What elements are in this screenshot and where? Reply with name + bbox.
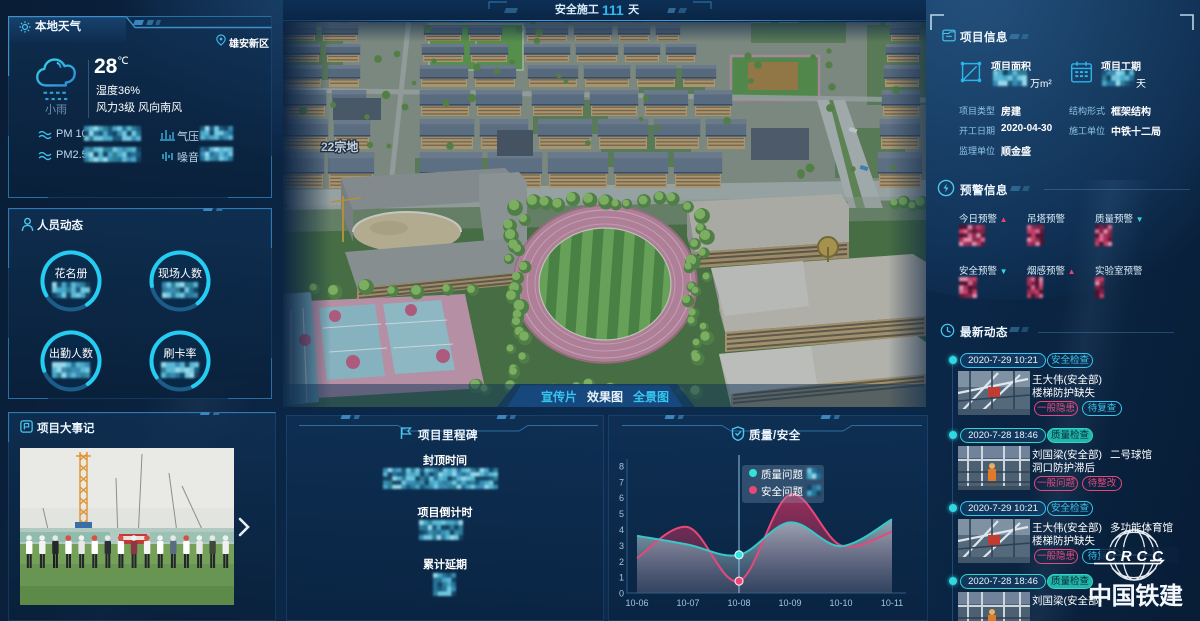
svg-text:中国铁建: 中国铁建 bbox=[1088, 583, 1183, 610]
svg-text:10-10: 10-10 bbox=[829, 598, 852, 608]
svg-text:6: 6 bbox=[619, 493, 624, 503]
svg-text:5: 5 bbox=[619, 509, 624, 519]
svg-text:10-07: 10-07 bbox=[676, 598, 699, 608]
svg-text:8: 8 bbox=[619, 462, 624, 472]
svg-text:3: 3 bbox=[619, 541, 624, 551]
svg-text:1: 1 bbox=[619, 573, 624, 583]
svg-text:10-08: 10-08 bbox=[727, 598, 750, 608]
svg-text:0: 0 bbox=[619, 589, 624, 599]
svg-text:2: 2 bbox=[619, 557, 624, 567]
svg-text:7: 7 bbox=[619, 477, 624, 487]
svg-text:10-09: 10-09 bbox=[778, 598, 801, 608]
svg-text:10-06: 10-06 bbox=[625, 598, 648, 608]
svg-text:4: 4 bbox=[619, 525, 624, 535]
svg-text:10-11: 10-11 bbox=[881, 598, 903, 608]
